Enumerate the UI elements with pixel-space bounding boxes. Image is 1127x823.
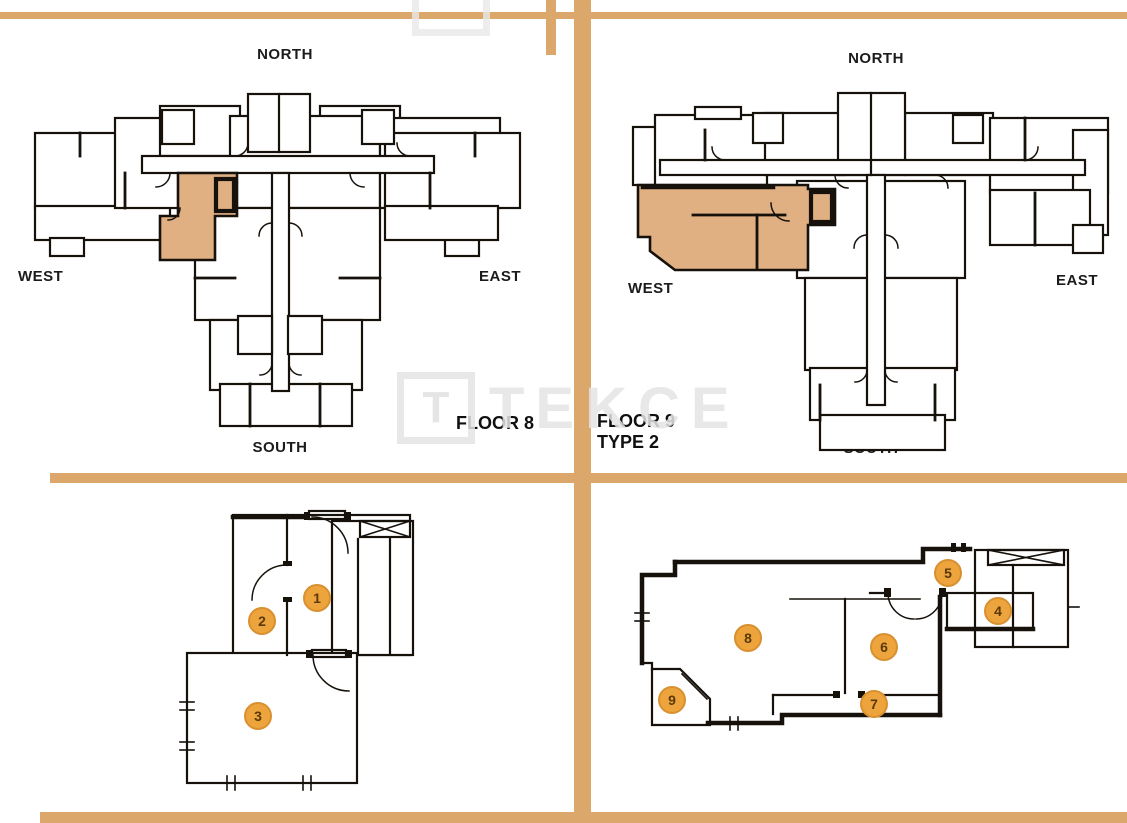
floor9-highlighted-unit [638, 185, 835, 270]
room-marker-5: 5 [934, 559, 962, 587]
room-marker-7: 7 [860, 690, 888, 718]
room-marker-4: 4 [984, 597, 1012, 625]
divider-vertical-bar [574, 0, 591, 823]
room-marker-2: 2 [248, 607, 276, 635]
room-marker-9: 9 [658, 686, 686, 714]
room-marker-1: 1 [303, 584, 331, 612]
floor8-north-label: NORTH [240, 46, 330, 63]
floor9-north-label: NORTH [831, 50, 921, 67]
floor9-plan [605, 85, 1120, 460]
divider-vertical-stub [546, 0, 556, 55]
floor8-plan [20, 88, 535, 453]
unit-left-plan [175, 505, 475, 805]
divider-top-bar [0, 12, 1127, 19]
room-marker-8: 8 [734, 624, 762, 652]
divider-middle-bar [50, 473, 1127, 483]
floorplan-sheet: T TEKCE NORTH WEST EAST SOUTH FLOOR 8 [0, 0, 1127, 823]
divider-bottom-bar [40, 812, 1127, 823]
room-marker-6: 6 [870, 633, 898, 661]
room-marker-3: 3 [244, 702, 272, 730]
